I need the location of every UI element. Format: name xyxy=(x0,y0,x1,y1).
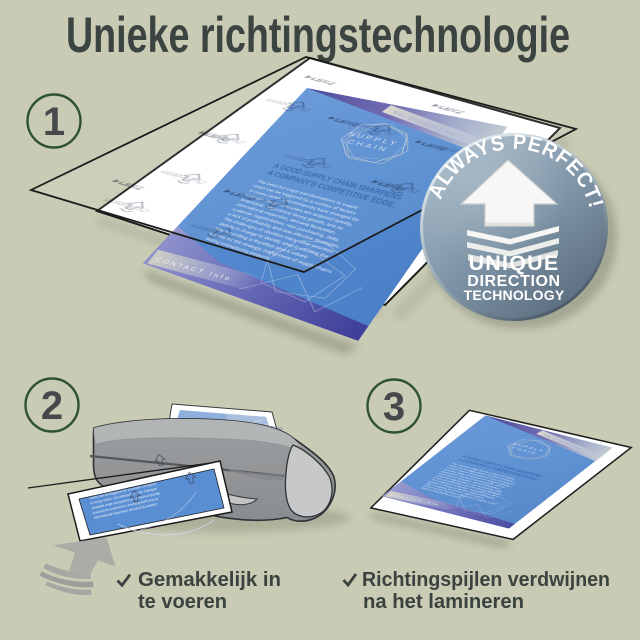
svg-text:Gemakkelijk in: Gemakkelijk in xyxy=(138,569,281,591)
svg-text:TECHNOLOGY: TECHNOLOGY xyxy=(464,287,565,303)
svg-text:UNIQUE: UNIQUE xyxy=(469,251,560,275)
svg-text:Richtingspijlen verdwijnen: Richtingspijlen verdwijnen xyxy=(362,569,610,591)
svg-text:te voeren: te voeren xyxy=(138,591,227,613)
svg-text:2: 2 xyxy=(41,384,63,428)
svg-text:na het lamineren: na het lamineren xyxy=(363,591,524,613)
